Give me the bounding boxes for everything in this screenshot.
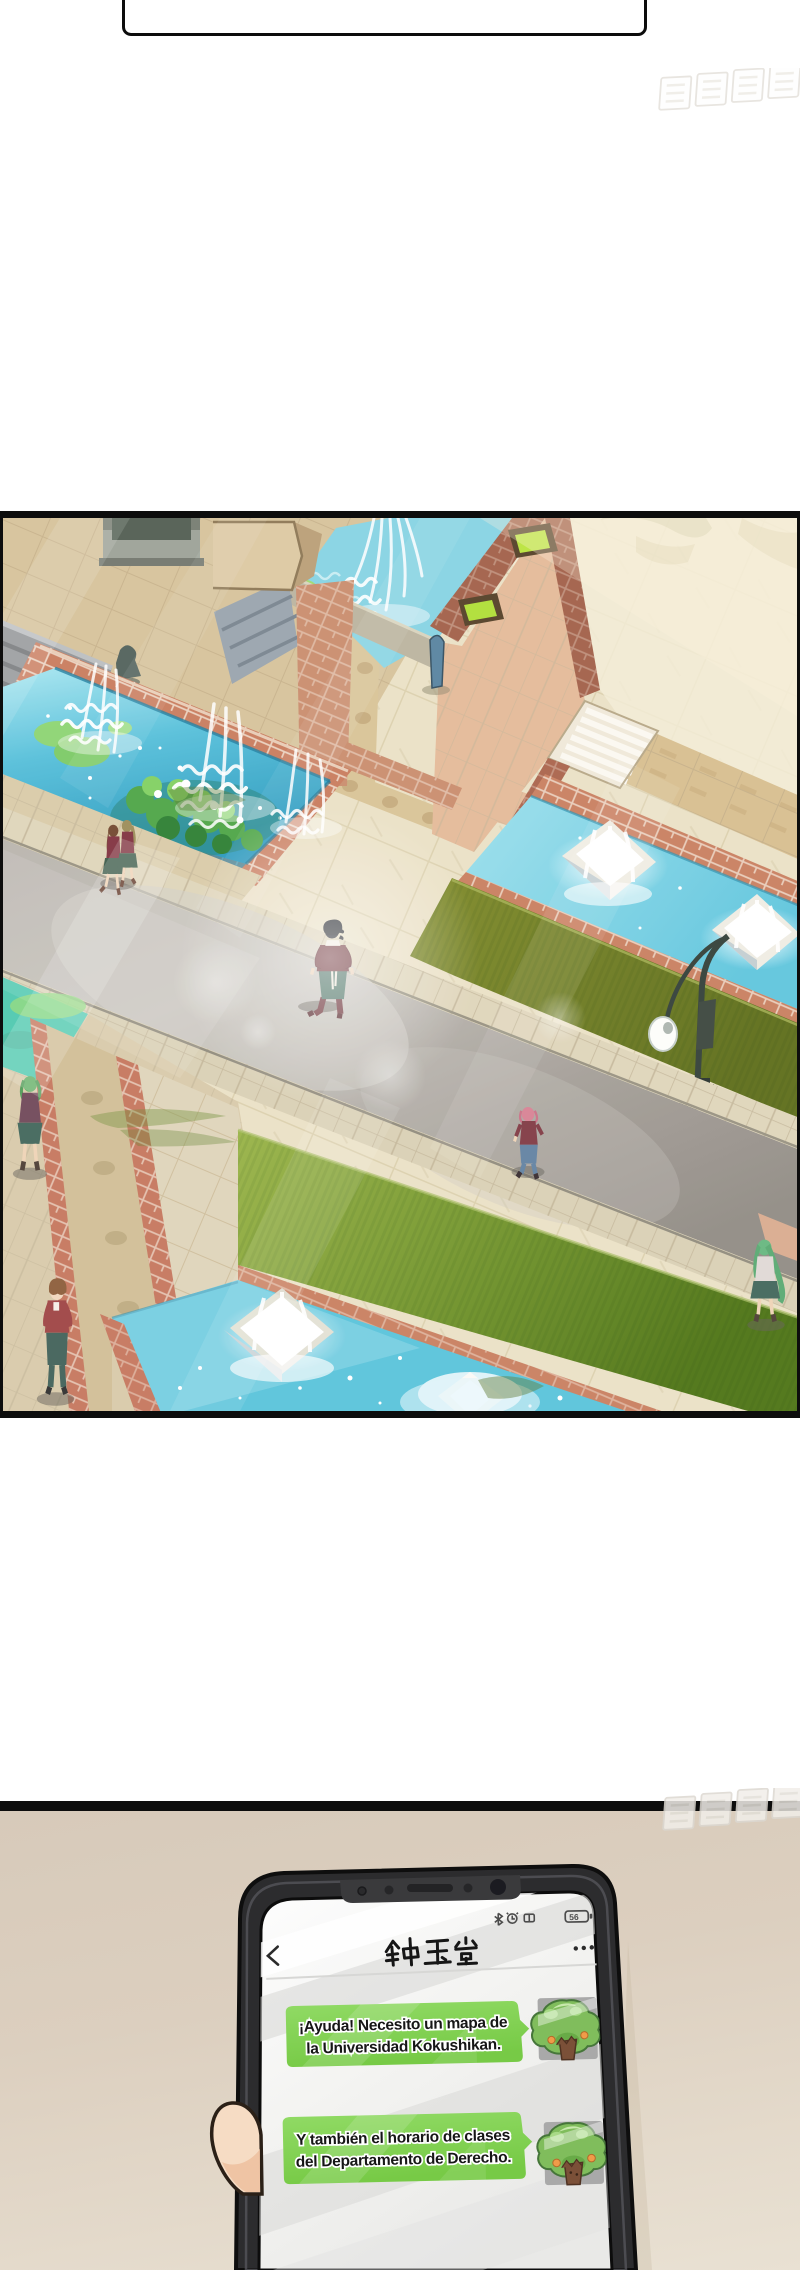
svg-text:56: 56 [569,1912,579,1922]
